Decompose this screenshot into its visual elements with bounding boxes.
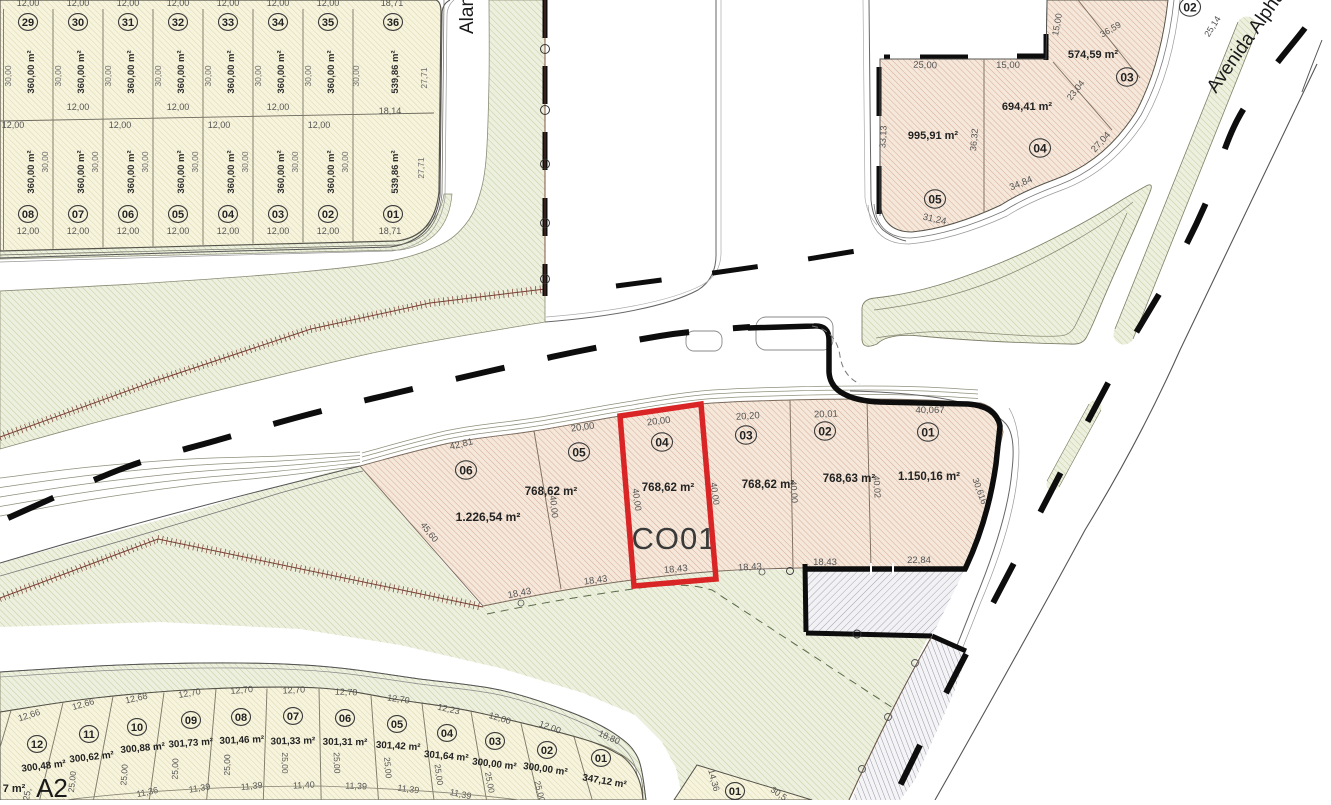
svg-text:30,00: 30,00 [203,65,213,87]
svg-text:12,00: 12,00 [267,0,290,8]
svg-text:12,00: 12,00 [267,102,290,112]
svg-text:01: 01 [595,753,607,765]
svg-text:539,86 m²: 539,86 m² [390,150,401,193]
svg-text:360,00 m²: 360,00 m² [226,150,237,193]
svg-text:301,31 m²: 301,31 m² [323,737,369,749]
svg-text:12,00: 12,00 [217,226,240,236]
svg-text:11: 11 [83,729,95,741]
svg-text:36: 36 [387,17,399,29]
svg-text:02: 02 [818,424,832,438]
svg-text:22,84: 22,84 [907,555,931,566]
svg-text:768,62 m²: 768,62 m² [642,482,695,494]
svg-text:30,00: 30,00 [40,151,50,173]
svg-text:18,71: 18,71 [379,226,402,236]
svg-text:35: 35 [322,17,334,29]
svg-text:25,: 25, [21,787,33,800]
svg-text:30,00: 30,00 [153,65,163,87]
svg-text:12: 12 [31,739,43,751]
svg-text:539,86 m²: 539,86 m² [390,50,401,93]
svg-text:30,00: 30,00 [240,151,250,173]
svg-text:34: 34 [272,17,285,29]
svg-text:360,00 m²: 360,00 m² [76,150,87,193]
svg-text:27,71: 27,71 [419,67,429,89]
svg-text:05: 05 [172,209,184,221]
svg-text:05: 05 [928,192,942,206]
svg-text:18,43: 18,43 [663,563,688,576]
svg-text:33: 33 [222,17,234,29]
svg-text:09: 09 [185,715,197,727]
svg-text:30,00: 30,00 [340,151,350,173]
svg-text:A2: A2 [36,773,68,800]
svg-text:12,70: 12,70 [335,687,358,698]
svg-text:574,59 m²: 574,59 m² [1068,49,1118,61]
svg-text:03: 03 [739,428,753,442]
svg-text:40,02: 40,02 [871,475,883,498]
svg-text:360,00 m²: 360,00 m² [176,150,187,193]
svg-text:694,41 m²: 694,41 m² [1002,101,1052,113]
svg-text:12,00: 12,00 [167,226,190,236]
svg-text:12,00: 12,00 [17,226,40,236]
svg-text:360,00 m²: 360,00 m² [276,150,287,193]
svg-text:12,00: 12,00 [208,120,231,130]
svg-text:360,00 m²: 360,00 m² [176,50,187,93]
svg-text:12,00: 12,00 [117,226,140,236]
svg-text:03: 03 [489,736,501,748]
svg-text:30,00: 30,00 [290,151,300,173]
svg-text:01: 01 [729,786,741,798]
svg-text:12,00: 12,00 [2,120,25,130]
svg-text:01: 01 [921,425,935,439]
svg-text:301,46 m²: 301,46 m² [219,734,265,747]
svg-text:360,00 m²: 360,00 m² [26,150,37,193]
svg-text:10: 10 [131,722,143,734]
svg-text:06: 06 [459,463,473,477]
svg-text:30,00: 30,00 [3,65,13,87]
svg-text:360,00 m²: 360,00 m² [326,50,337,93]
svg-text:1.226,54 m²: 1.226,54 m² [456,510,521,524]
svg-text:33,13: 33,13 [877,125,888,148]
svg-text:11,40: 11,40 [293,779,315,790]
svg-text:12,00: 12,00 [267,226,290,236]
svg-text:12,00: 12,00 [308,120,331,130]
svg-text:768,62 m²: 768,62 m² [525,486,578,498]
svg-text:25,00: 25,00 [913,60,937,72]
svg-text:12,00: 12,00 [217,0,240,8]
svg-text:12,00: 12,00 [109,120,132,130]
svg-text:02: 02 [541,745,553,757]
svg-text:768,62 m²: 768,62 m² [742,479,795,491]
svg-text:12,00: 12,00 [67,226,90,236]
svg-text:30,00: 30,00 [303,65,313,87]
svg-text:12,00: 12,00 [67,102,90,112]
svg-text:18,43: 18,43 [738,561,762,573]
svg-text:18,14: 18,14 [379,106,402,116]
svg-text:12,00: 12,00 [317,0,340,8]
svg-text:1.150,16 m²: 1.150,16 m² [898,471,960,483]
svg-text:30,00: 30,00 [90,151,100,173]
svg-text:25,00: 25,00 [170,758,181,780]
svg-text:31: 31 [122,17,134,29]
svg-text:12,70: 12,70 [282,684,305,695]
svg-text:03: 03 [272,209,284,221]
svg-text:20,01: 20,01 [814,409,838,421]
svg-text:20,20: 20,20 [736,410,760,423]
svg-text:11,39: 11,39 [345,781,367,792]
svg-text:360,00 m²: 360,00 m² [226,50,237,93]
svg-text:12,00: 12,00 [167,102,190,112]
svg-text:25,00: 25,00 [118,764,129,786]
svg-text:360,00 m²: 360,00 m² [126,150,137,193]
svg-text:03: 03 [1120,70,1134,84]
svg-text:12,00: 12,00 [317,226,340,236]
svg-text:30,00: 30,00 [190,151,200,173]
svg-text:02: 02 [1183,0,1197,14]
svg-text:04: 04 [655,435,669,449]
svg-text:40,00: 40,00 [788,480,800,503]
svg-text:30: 30 [72,17,84,29]
svg-text:360,00 m²: 360,00 m² [26,50,37,93]
svg-text:15,00: 15,00 [996,60,1020,71]
svg-text:25,00: 25,00 [382,757,394,779]
svg-text:Alam: Alam [457,0,478,34]
svg-text:360,00 m²: 360,00 m² [276,50,287,93]
svg-text:08: 08 [22,209,34,221]
svg-text:04: 04 [441,728,454,740]
svg-text:29: 29 [22,17,34,29]
svg-text:06: 06 [122,209,134,221]
svg-text:06: 06 [339,713,351,725]
svg-text:12,00: 12,00 [17,0,40,8]
svg-text:04: 04 [222,209,235,221]
svg-text:07: 07 [72,209,84,221]
svg-text:40,067: 40,067 [915,405,944,416]
svg-text:04: 04 [1033,141,1047,155]
svg-text:25,00: 25,00 [332,752,343,774]
svg-text:08: 08 [235,712,247,724]
svg-text:360,00 m²: 360,00 m² [76,50,87,93]
svg-text:05: 05 [391,719,403,731]
svg-text:301,33 m²: 301,33 m² [271,736,317,748]
svg-text:30,00: 30,00 [253,65,263,87]
svg-text:12,00: 12,00 [167,0,190,8]
svg-text:05: 05 [572,445,586,459]
svg-text:30,00: 30,00 [53,65,63,87]
svg-text:CO01: CO01 [632,521,717,556]
svg-text:12,00: 12,00 [67,0,90,8]
svg-text:25,00: 25,00 [280,752,290,774]
svg-text:995,91 m²: 995,91 m² [908,130,958,142]
svg-text:30,00: 30,00 [351,65,361,87]
svg-text:02: 02 [322,209,334,221]
svg-text:12,00: 12,00 [117,0,140,8]
svg-text:32: 32 [172,17,184,29]
svg-text:07: 07 [287,711,299,723]
svg-text:18,71: 18,71 [381,0,404,8]
svg-text:25,00: 25,00 [222,754,232,776]
svg-text:01: 01 [387,209,399,221]
svg-text:360,00 m²: 360,00 m² [326,150,337,193]
svg-text:27,71: 27,71 [416,157,426,179]
svg-text:36,32: 36,32 [968,128,980,151]
svg-text:30,00: 30,00 [103,65,113,87]
svg-text:30,00: 30,00 [140,151,150,173]
svg-text:360,00 m²: 360,00 m² [126,50,137,93]
svg-text:768,63 m²: 768,63 m² [823,473,876,485]
